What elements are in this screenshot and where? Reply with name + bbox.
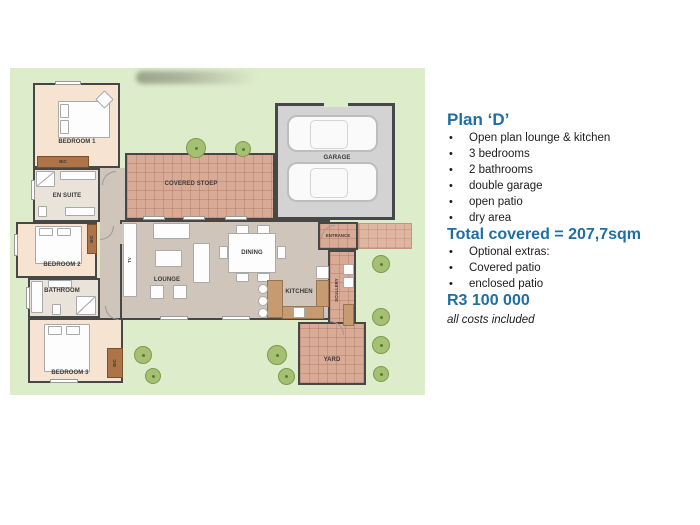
ottoman <box>173 285 187 299</box>
extra-item: Optional extras: <box>447 244 687 260</box>
tree-icon <box>373 366 389 382</box>
feature-item: 3 bedrooms <box>447 146 687 162</box>
tree-icon <box>186 138 206 158</box>
dining-chair <box>277 246 286 259</box>
bed-3-pillow <box>66 326 80 335</box>
window <box>14 234 18 256</box>
price-note: all costs included <box>447 313 687 328</box>
window <box>222 316 250 320</box>
car <box>287 115 378 152</box>
label-yard: YARD <box>324 357 341 363</box>
extras-list: Optional extras: Covered patio enclosed … <box>447 244 687 292</box>
tree-icon <box>145 368 161 384</box>
bed-3-pillow <box>48 326 62 335</box>
feature-item: dry area <box>447 210 687 226</box>
window <box>160 316 188 320</box>
label-bic: BIC <box>89 235 94 243</box>
kitchen-counter <box>316 280 329 307</box>
car-cabin <box>310 168 349 199</box>
dining-chair <box>236 273 249 282</box>
bar-stool <box>258 308 268 318</box>
fridge <box>316 266 329 279</box>
window <box>55 81 81 85</box>
toilet <box>52 304 61 315</box>
label-kitchen: KITCHEN <box>285 289 312 295</box>
tree-icon <box>134 346 152 364</box>
label-scullery: SCULLERY <box>334 278 339 301</box>
ottoman <box>150 285 164 299</box>
toilet <box>38 206 47 217</box>
shower <box>36 171 55 187</box>
entrance-path <box>358 223 412 249</box>
car-cabin <box>310 120 349 148</box>
label-bic: BIC <box>112 359 117 367</box>
tree-icon <box>267 345 287 365</box>
bed-2-pillow <box>39 228 53 236</box>
feature-item: 2 bathrooms <box>447 162 687 178</box>
label-tv: TV <box>127 257 132 263</box>
feature-item: double garage <box>447 178 687 194</box>
coffee-table <box>155 250 182 267</box>
bathtub <box>31 281 43 313</box>
label-en-suite: EN SUITE <box>53 193 81 199</box>
tree-icon <box>235 141 251 157</box>
sofa <box>193 243 210 283</box>
bed-2-pillow <box>57 228 71 236</box>
tree-icon <box>372 255 390 273</box>
tree-icon <box>278 368 295 385</box>
vanity <box>48 280 72 288</box>
washing-machine <box>343 277 354 288</box>
room-open-plan-living <box>120 220 330 320</box>
bathtub <box>65 207 95 216</box>
car <box>287 162 378 202</box>
hall-opening <box>118 224 124 244</box>
brochure-page: BEDROOM 1 BIC EN SUITE BEDROOM 2 BIC BAT… <box>0 0 700 525</box>
label-bic: BIC <box>59 159 67 164</box>
label-covered-stoep: COVERED STOEP <box>165 181 218 187</box>
label-dining: DINING <box>241 250 263 256</box>
floor-plan: BEDROOM 1 BIC EN SUITE BEDROOM 2 BIC BAT… <box>10 68 425 395</box>
label-bedroom-2: BEDROOM 2 <box>43 262 80 268</box>
sofa <box>153 223 190 239</box>
tree-icon <box>372 308 390 326</box>
window <box>183 216 205 220</box>
garage-door-opening <box>324 100 348 107</box>
label-bedroom-3: BEDROOM 3 <box>51 370 88 376</box>
label-lounge: LOUNGE <box>154 277 180 283</box>
bed-1-pillow <box>60 104 69 118</box>
bar-stool <box>258 284 268 294</box>
extra-item: enclosed patio <box>447 276 687 292</box>
dining-chair <box>219 246 228 259</box>
extra-item: Covered patio <box>447 260 687 276</box>
bed-1-pillow <box>60 120 69 134</box>
feature-list: Open plan lounge & kitchen 3 bedrooms 2 … <box>447 130 687 226</box>
label-bathroom: BATHROOM <box>44 288 80 294</box>
blurred-watermark <box>136 71 278 84</box>
total-covered: Total covered = 207,7sqm <box>447 226 687 244</box>
window <box>26 287 30 309</box>
window <box>50 379 78 383</box>
window <box>143 216 165 220</box>
sink <box>343 264 354 275</box>
label-garage: GARAGE <box>324 155 351 161</box>
label-entrance: ENTRANCE <box>326 233 350 238</box>
shower <box>76 296 96 315</box>
tree-icon <box>372 336 390 354</box>
window <box>225 216 247 220</box>
bar-stool <box>258 296 268 306</box>
kitchen-counter <box>267 280 283 318</box>
feature-item: Open plan lounge & kitchen <box>447 130 687 146</box>
feature-item: open patio <box>447 194 687 210</box>
stove <box>293 307 305 318</box>
price: R3 100 000 <box>447 292 687 310</box>
vanity <box>60 171 96 180</box>
info-panel: Plan ‘D’ Open plan lounge & kitchen 3 be… <box>447 110 687 328</box>
scullery-counter <box>343 304 354 326</box>
window <box>31 180 35 200</box>
plan-title: Plan ‘D’ <box>447 110 687 130</box>
label-bedroom-1: BEDROOM 1 <box>58 139 95 145</box>
